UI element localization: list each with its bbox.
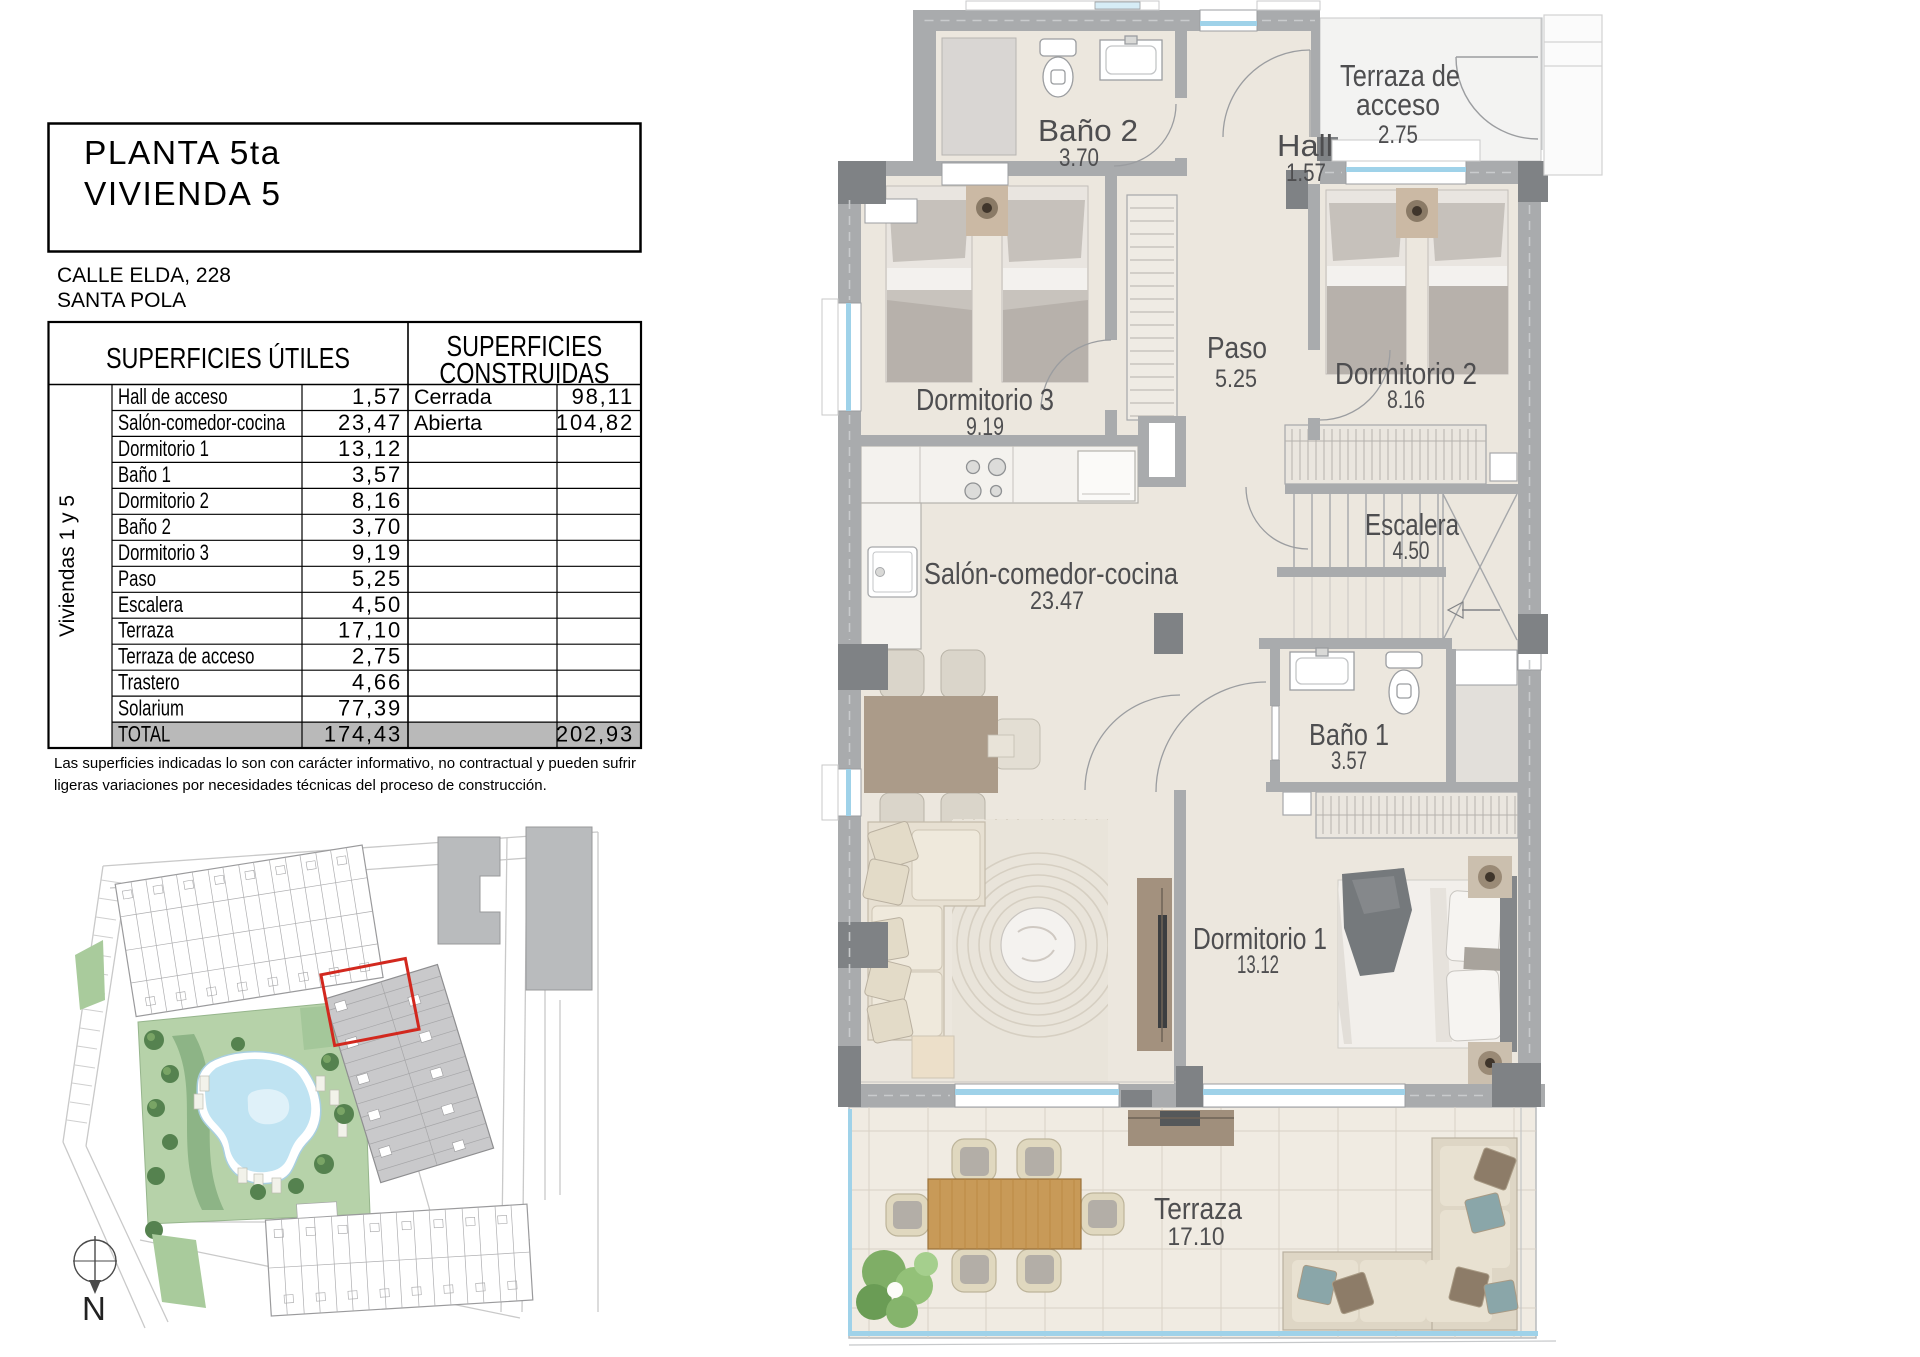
svg-text:Baño 2: Baño 2: [1038, 113, 1138, 148]
svg-text:1,57: 1,57: [352, 384, 402, 409]
svg-text:N: N: [82, 1290, 106, 1327]
svg-text:3.70: 3.70: [1059, 144, 1099, 172]
svg-text:Baño 1: Baño 1: [118, 463, 171, 488]
svg-text:5.25: 5.25: [1215, 365, 1257, 393]
svg-text:4,66: 4,66: [352, 670, 402, 695]
svg-text:98,11: 98,11: [572, 384, 634, 409]
svg-text:Paso: Paso: [118, 567, 156, 592]
svg-text:Salón-comedor-cocina: Salón-comedor-cocina: [118, 411, 285, 436]
svg-text:CALLE ELDA, 228: CALLE ELDA, 228: [57, 264, 231, 287]
svg-text:202,93: 202,93: [556, 722, 634, 747]
svg-text:Viviendas 1 y 5: Viviendas 1 y 5: [56, 495, 79, 637]
svg-text:PLANTA 5ta: PLANTA 5ta: [84, 135, 281, 172]
svg-text:1.57: 1.57: [1286, 159, 1326, 187]
svg-text:Paso: Paso: [1207, 330, 1267, 365]
svg-text:Dormitorio 3: Dormitorio 3: [118, 541, 209, 566]
svg-text:Terraza: Terraza: [118, 619, 174, 644]
svg-text:5,25: 5,25: [352, 566, 402, 591]
svg-text:3,70: 3,70: [352, 514, 402, 539]
svg-text:Hall de acceso: Hall de acceso: [118, 385, 228, 410]
svg-text:Terraza: Terraza: [1154, 1191, 1243, 1226]
svg-text:Dormitorio 2: Dormitorio 2: [118, 489, 209, 514]
svg-text:2,75: 2,75: [352, 644, 402, 669]
svg-text:Escalera: Escalera: [118, 593, 183, 618]
svg-text:VIVIENDA 5: VIVIENDA 5: [84, 176, 281, 213]
svg-text:23,47: 23,47: [338, 410, 402, 435]
svg-text:Hall: Hall: [1277, 128, 1333, 163]
svg-text:Cerrada: Cerrada: [414, 385, 492, 409]
svg-text:13.12: 13.12: [1237, 951, 1279, 979]
svg-text:Las superficies indicadas lo s: Las superficies indicadas lo son con car…: [54, 755, 636, 772]
svg-text:Salón-comedor-cocina: Salón-comedor-cocina: [924, 556, 1179, 591]
svg-text:9.19: 9.19: [966, 413, 1004, 441]
svg-text:SUPERFICIES ÚTILES: SUPERFICIES ÚTILES: [106, 342, 350, 375]
svg-text:17.10: 17.10: [1168, 1223, 1225, 1251]
svg-text:13,12: 13,12: [338, 436, 402, 461]
svg-text:Dormitorio 1: Dormitorio 1: [118, 437, 209, 462]
svg-text:ligeras variaciones por necesi: ligeras variaciones por necesidades técn…: [54, 777, 547, 794]
svg-text:Terraza de acceso: Terraza de acceso: [118, 645, 255, 670]
svg-text:23.47: 23.47: [1030, 587, 1084, 615]
svg-text:3,57: 3,57: [352, 462, 402, 487]
svg-text:4,50: 4,50: [352, 592, 402, 617]
svg-text:8,16: 8,16: [352, 488, 402, 513]
svg-text:Dormitorio 3: Dormitorio 3: [916, 382, 1054, 417]
svg-text:TOTAL: TOTAL: [118, 722, 170, 747]
svg-text:SANTA POLA: SANTA POLA: [57, 289, 186, 312]
svg-text:Solarium: Solarium: [118, 696, 184, 721]
svg-text:17,10: 17,10: [338, 618, 402, 643]
svg-text:104,82: 104,82: [556, 410, 634, 435]
svg-text:Baño 2: Baño 2: [118, 515, 171, 540]
svg-text:77,39: 77,39: [338, 696, 402, 721]
svg-text:4.50: 4.50: [1393, 537, 1430, 565]
svg-text:acceso: acceso: [1356, 87, 1440, 122]
svg-text:3.57: 3.57: [1331, 747, 1367, 775]
svg-text:9,19: 9,19: [352, 540, 402, 565]
svg-text:174,43: 174,43: [324, 722, 402, 747]
svg-text:Abierta: Abierta: [414, 411, 482, 435]
svg-text:2.75: 2.75: [1378, 121, 1418, 149]
svg-text:8.16: 8.16: [1387, 386, 1425, 414]
svg-text:Trastero: Trastero: [118, 671, 180, 696]
